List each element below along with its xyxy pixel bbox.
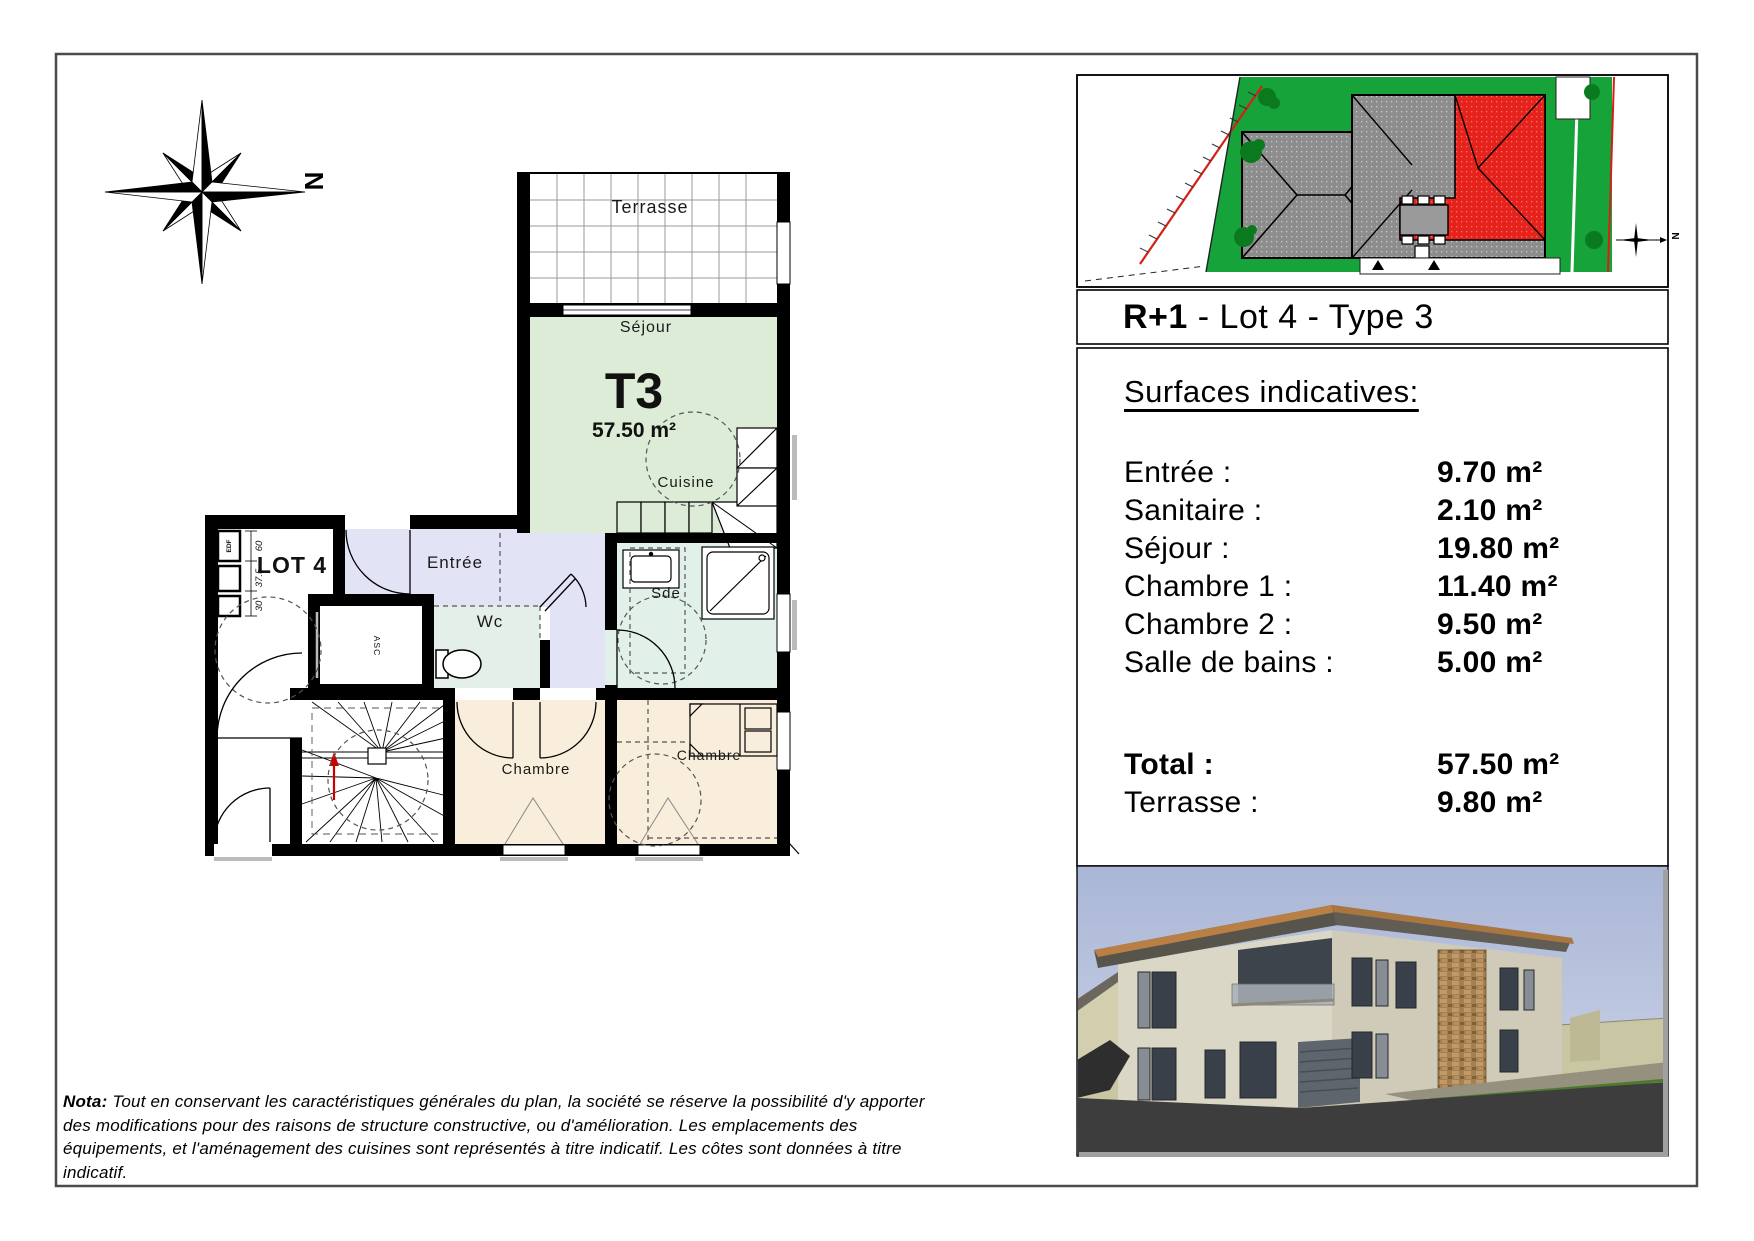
surface-row-label: Chambre 2 : <box>1124 606 1437 644</box>
dim-label-30: 30 <box>254 600 265 611</box>
surface-row: Chambre 2 : 9.50 m² <box>1124 606 1648 644</box>
room-label-chambre1: Chambre <box>502 761 571 778</box>
site-plan: N <box>1077 75 1680 287</box>
surface-row: Salle de bains : 5.00 m² <box>1124 644 1648 682</box>
surface-row: Séjour : 19.80 m² <box>1124 530 1648 568</box>
room-label-sejour: Séjour <box>620 319 672 336</box>
type-label: T3 <box>605 363 663 419</box>
nota-body: Tout en conservant les caractéristiques … <box>63 1092 925 1182</box>
kitchen-counter <box>617 502 712 533</box>
kitchen-appliances <box>737 428 777 506</box>
total-row: Total : 57.50 m² <box>1124 746 1648 784</box>
dim-label-37: 37.5 <box>254 568 265 587</box>
surface-row-label: Séjour : <box>1124 530 1437 568</box>
type-area-label: 57.50 m² <box>592 419 676 442</box>
elevator-label: ASC <box>372 636 382 656</box>
compass-north-label: N <box>299 172 329 191</box>
surface-row-value: 9.50 m² <box>1437 606 1543 644</box>
surface-row: Entrée : 9.70 m² <box>1124 454 1648 492</box>
surfaces-panel: Surfaces indicatives: Entrée : 9.70 m² S… <box>1077 348 1668 866</box>
dim-label-60: 60 <box>254 540 265 551</box>
surface-row-label: Salle de bains : <box>1124 644 1437 682</box>
surface-row-value: 2.10 m² <box>1437 492 1543 530</box>
dim-label-edf: EDF <box>226 539 233 552</box>
terrace-value: 9.80 m² <box>1437 784 1543 822</box>
room-terrasse <box>530 174 777 303</box>
nota-prefix: Nota: <box>63 1092 107 1111</box>
render-3d <box>1070 866 1668 1157</box>
room-label-sde: Sde <box>651 585 681 602</box>
terrace-row: Terrasse : 9.80 m² <box>1124 784 1648 822</box>
site-north-label: N <box>1669 232 1680 239</box>
plan-sheet: N <box>0 0 1754 1241</box>
surface-row-value: 19.80 m² <box>1437 530 1559 568</box>
surface-totals: Total : 57.50 m² Terrasse : 9.80 m² <box>1124 746 1648 822</box>
surface-row-value: 11.40 m² <box>1437 568 1558 606</box>
room-label-entree: Entrée <box>427 553 483 572</box>
compass-rose <box>105 100 305 284</box>
nota-disclaimer: Nota: Tout en conservant les caractérist… <box>63 1090 947 1184</box>
wc-toilet <box>436 650 481 678</box>
floor-plan: Terrasse Séjour T3 57.50 m² Cuisine Entr… <box>205 172 799 861</box>
surfaces-heading: Surfaces indicatives: <box>1124 374 1419 410</box>
room-label-wc: Wc <box>477 612 504 631</box>
surface-row-label: Sanitaire : <box>1124 492 1437 530</box>
surface-row-label: Chambre 1 : <box>1124 568 1437 606</box>
lot-label: LOT 4 <box>257 552 327 578</box>
sheet-title: R+1 - Lot 4 - Type 3 <box>1077 290 1668 344</box>
staircase <box>302 702 455 842</box>
title-level: R+1 <box>1123 298 1188 337</box>
surface-row: Sanitaire : 2.10 m² <box>1124 492 1648 530</box>
total-value: 57.50 m² <box>1437 746 1559 784</box>
room-label-cuisine: Cuisine <box>657 474 714 491</box>
room-label-terrasse: Terrasse <box>611 197 688 217</box>
surface-row-value: 5.00 m² <box>1437 644 1543 682</box>
surface-row: Chambre 1 : 11.40 m² <box>1124 568 1648 606</box>
terrace-label: Terrasse : <box>1124 784 1437 822</box>
total-label: Total : <box>1124 746 1437 784</box>
surface-row-value: 9.70 m² <box>1437 454 1543 492</box>
room-label-chambre2: Chambre <box>677 747 742 763</box>
title-lot-type: - Lot 4 - Type 3 <box>1188 298 1434 337</box>
surface-row-label: Entrée : <box>1124 454 1437 492</box>
